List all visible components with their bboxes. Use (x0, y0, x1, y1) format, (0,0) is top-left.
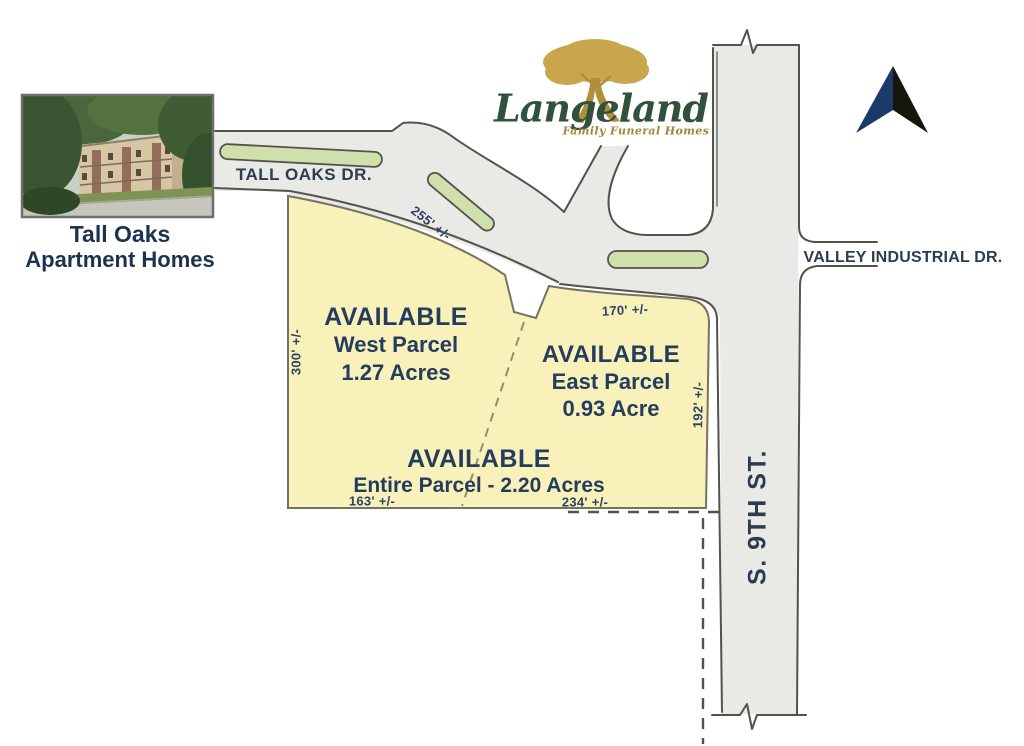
apartment-photo (0, 87, 234, 217)
east-parcel-status: AVAILABLE (542, 341, 680, 368)
entire-parcel-label: AVAILABLE Entire Parcel - 2.20 Acres (353, 445, 604, 498)
photo-caption-line1: Tall Oaks (25, 221, 214, 247)
west-parcel-area: 1.27 Acres (324, 359, 468, 387)
langeland-logo-tagline: Family Funeral Homes (563, 125, 710, 138)
site-map: Tall Oaks Apartment Homes Langeland Fami… (0, 0, 1024, 746)
east-parcel-name: East Parcel (542, 368, 680, 395)
west-parcel-name: West Parcel (324, 331, 468, 359)
photo-caption-line2: Apartment Homes (25, 247, 214, 272)
west-parcel-status: AVAILABLE (324, 303, 468, 331)
dimension-300: 300' +/- (289, 329, 304, 375)
dimension-163: 163' +/- (349, 494, 395, 509)
dimension-234: 234' +/- (562, 495, 608, 510)
dimension-192: 192' +/- (690, 382, 706, 429)
dimension-170: 170' +/- (601, 301, 648, 318)
road-label-tall-oaks: TALL OAKS DR. (236, 165, 372, 185)
east-parcel-area: 0.93 Acre (542, 395, 680, 422)
west-parcel-label: AVAILABLE West Parcel 1.27 Acres (324, 303, 468, 387)
photo-caption: Tall Oaks Apartment Homes (25, 221, 214, 272)
east-parcel-label: AVAILABLE East Parcel 0.93 Acre (542, 341, 680, 422)
median-intersection (608, 251, 708, 268)
entire-parcel-status: AVAILABLE (353, 445, 604, 473)
north-arrow-icon (856, 66, 928, 133)
road-label-valley-industrial: VALLEY INDUSTRIAL DR. (804, 249, 1003, 267)
road-label-s-9th: S. 9TH ST. (744, 449, 773, 585)
